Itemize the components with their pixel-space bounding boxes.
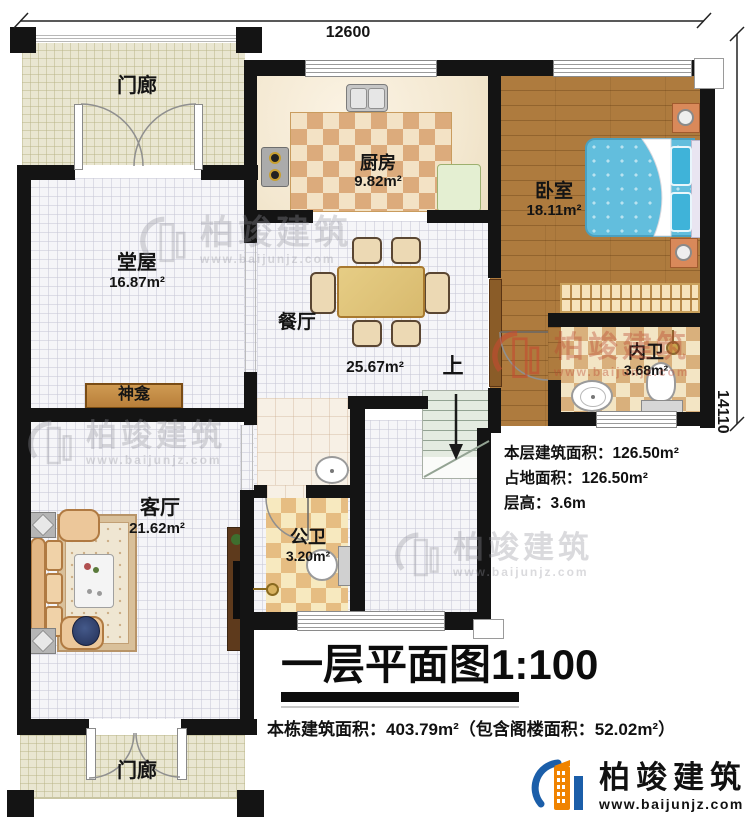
dining-chair [391, 320, 421, 347]
room-label-hall: 堂屋 [117, 253, 157, 274]
wall [240, 612, 298, 630]
brand-block: 柏竣建筑 www.baijunjz.com [531, 756, 747, 816]
lamp-icon [677, 109, 694, 126]
door-leaf [86, 728, 96, 780]
lamp-icon [675, 244, 692, 261]
sofa-back [30, 537, 46, 641]
wall [306, 485, 365, 498]
dining-chair [352, 237, 382, 264]
wall [427, 210, 501, 223]
pillow [670, 146, 692, 186]
kitchen-window [305, 60, 437, 77]
armchair [58, 509, 100, 542]
porch-pillar [237, 790, 264, 817]
room-label-inner-bath: 内卫 [628, 343, 664, 362]
side-table [30, 628, 56, 654]
dining-chair [310, 272, 336, 314]
building-area-note: 本栋建筑面积：403.79m²（包含阁楼面积：52.02m²） [267, 715, 675, 740]
opening [267, 485, 306, 498]
wall [244, 60, 257, 243]
bedroom-window [553, 60, 692, 77]
dining-chair [352, 320, 382, 347]
wall [257, 210, 313, 223]
bathroom-sink [571, 380, 613, 412]
door-leaf [194, 104, 203, 170]
door-leaf [74, 104, 83, 170]
wall [675, 412, 715, 426]
wall [700, 60, 715, 428]
dimension-right-label: 14110 [713, 390, 731, 434]
plan-title: 一层平面图1:100 [281, 631, 598, 692]
brand-url: www.baijunjz.com [599, 797, 747, 811]
stairs-up-label: 上 [443, 356, 464, 378]
room-area-public-bath: 3.20m² [286, 549, 330, 564]
nightstand [672, 103, 700, 133]
wall [17, 165, 31, 735]
room-area-dining: 25.67m² [346, 360, 404, 376]
alcove-sink [315, 456, 349, 484]
kitchen-sink [346, 84, 388, 112]
wall [348, 396, 428, 409]
room-label-porch-bottom: 门廊 [117, 761, 157, 782]
opening-jamb [255, 243, 256, 372]
inner-bath-window [596, 411, 677, 428]
room-area-inner-bath: 3.68m² [624, 363, 668, 378]
door-leaf-wood [489, 279, 502, 387]
room-label-kitchen: 厨房 [360, 154, 396, 173]
porch-pillar [7, 790, 34, 817]
floor-drain-icon [266, 583, 279, 596]
porch-pillar [10, 27, 36, 53]
wardrobe [560, 283, 700, 313]
wall [488, 388, 501, 433]
title-underline [281, 692, 519, 702]
wall [17, 408, 257, 422]
door-leaf [177, 728, 187, 780]
nightstand [670, 238, 698, 268]
room-label-living: 客厅 [140, 498, 180, 519]
room-label-public-bath: 公卫 [290, 528, 326, 547]
shower-head-icon [666, 341, 680, 355]
porch-pillar [236, 27, 262, 53]
room-area-kitchen: 9.82m² [354, 174, 402, 190]
title-underline-thin [281, 706, 519, 708]
opening [548, 327, 561, 380]
sofa-seat [45, 573, 63, 604]
room-label-porch-top: 门廊 [117, 76, 157, 97]
opening-jamb [245, 243, 246, 372]
dimension-top-label: 12600 [326, 25, 371, 42]
wall [477, 428, 491, 626]
rear-window [297, 611, 445, 631]
porch-top-floor [22, 42, 245, 165]
opening-jamb [241, 425, 242, 490]
brand-logo-icon [531, 756, 591, 816]
room-area-living: 21.62m² [129, 521, 185, 537]
floor-stats: 本层建筑面积：126.50m² 占地面积：126.50m² 层高：3.6m [504, 441, 679, 516]
wall [253, 485, 267, 498]
hall-floor [30, 178, 244, 410]
decor-plant [72, 616, 100, 646]
stat-line: 占地面积：126.50m² [504, 466, 679, 491]
brand-name: 柏竣建筑 [599, 762, 747, 793]
room-label-bedroom: 卧室 [535, 182, 573, 202]
floor-plan: 门廊 厨房 9.82m² 卧室 18.11m² 堂屋 16.87m² 餐厅 25… [0, 0, 750, 829]
dining-chair [424, 272, 450, 314]
wall [488, 60, 501, 278]
shrine-label: 神龛 [118, 387, 150, 404]
dining-chair [391, 237, 421, 264]
room-label-dining: 餐厅 [278, 313, 316, 333]
wall [17, 719, 89, 735]
pillow [670, 192, 692, 232]
dining-table [337, 266, 425, 318]
wall [548, 313, 715, 327]
stat-line: 层高：3.6m [504, 491, 679, 516]
wall [17, 165, 75, 180]
coffee-table [74, 554, 114, 608]
wall [548, 412, 596, 426]
corner-notch [694, 58, 724, 89]
opening-jamb [252, 425, 253, 490]
door-opening [89, 719, 181, 735]
wall [350, 396, 365, 612]
stove [261, 147, 289, 187]
porch-top-edge [22, 33, 245, 43]
sofa-seat [45, 540, 63, 571]
stat-line: 本层建筑面积：126.50m² [504, 441, 679, 466]
room-area-bedroom: 18.11m² [526, 203, 581, 219]
room-area-hall: 16.87m² [109, 275, 165, 291]
side-table [30, 512, 56, 538]
fridge [437, 164, 481, 212]
